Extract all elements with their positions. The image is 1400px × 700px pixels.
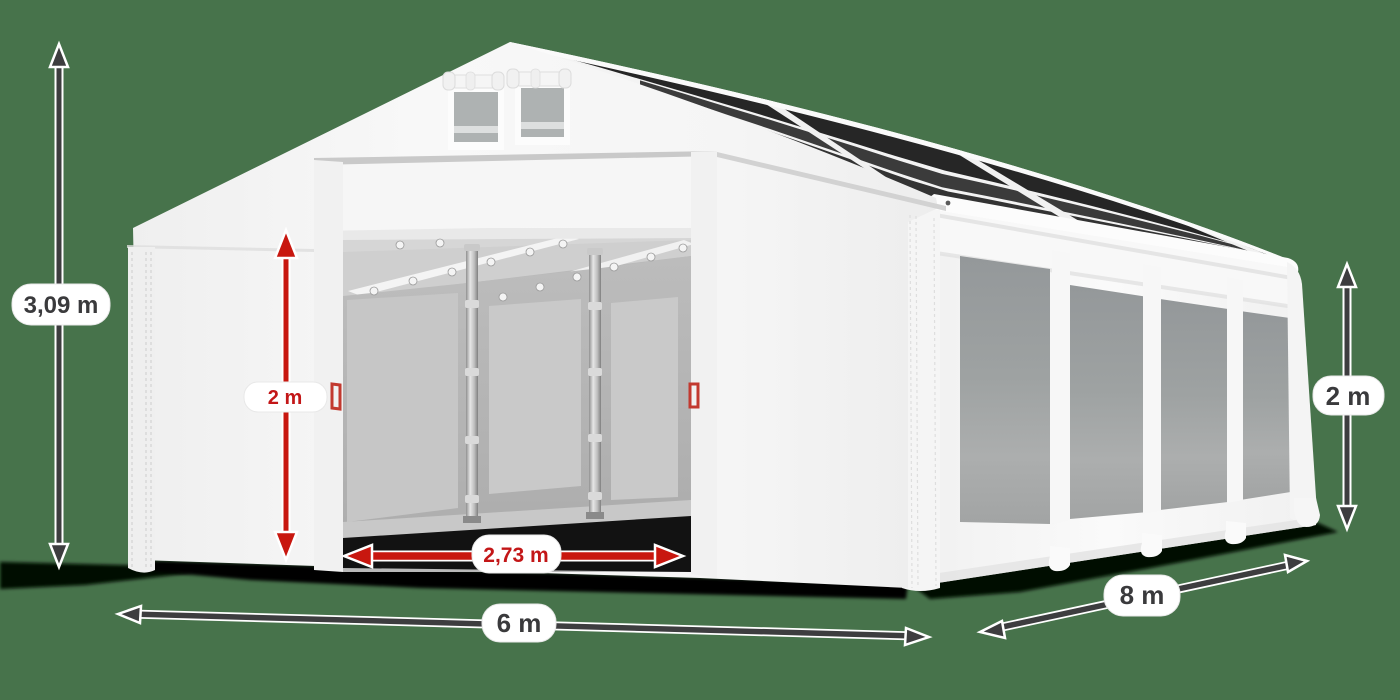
svg-text:2,73 m: 2,73 m	[483, 544, 548, 567]
svg-text:8 m: 8 m	[1120, 580, 1165, 610]
svg-text:2 m: 2 m	[268, 387, 302, 409]
svg-text:2 m: 2 m	[1326, 381, 1371, 411]
svg-text:6 m: 6 m	[497, 608, 542, 638]
svg-text:3,09 m: 3,09 m	[24, 292, 99, 319]
